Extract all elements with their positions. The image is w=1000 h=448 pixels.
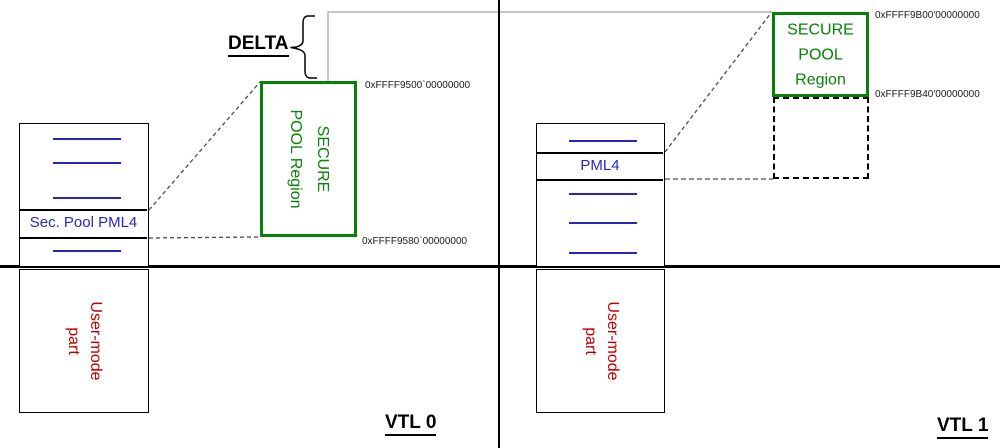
vtl0-cell-separator [20, 237, 147, 239]
vtl0-user-mode-box: User-mode part [19, 269, 149, 413]
vtl0-secure-pool-start-address: 0xFFFF9500`00000000 [365, 80, 470, 91]
vtl0-mapping-line-top [149, 82, 260, 210]
vtl0-secure-pool-pml4-entry: Sec. Pool PML4 [20, 210, 147, 236]
vtl1-pml4-entry: PML4 [537, 153, 663, 179]
vtl1-entry-line [569, 252, 637, 254]
vtl0-mapping-line-bottom [149, 237, 259, 238]
vtl-memory-diagram: DELTA Sec. Pool PML4 User-mode part SECU… [0, 0, 1000, 448]
vtl1-user-mode-label: User-mode part [579, 271, 623, 411]
vtl1-label: VTL 1 [937, 415, 988, 439]
delta-reference-line [328, 12, 772, 81]
vtl1-secure-pool-label: SECURE POOL Region [775, 17, 867, 92]
vtl1-entry-line [569, 222, 637, 224]
vtl0-entry-line [53, 138, 121, 140]
vtl0-pml4-table: Sec. Pool PML4 [19, 123, 149, 267]
vtl1-secure-pool-start-address: 0xFFFF9B00'00000000 [875, 10, 980, 21]
delta-label: DELTA [228, 33, 289, 57]
vtl0-secure-pool-label: SECURE POOL Region [282, 84, 336, 234]
vtl0-secure-pool-region: SECURE POOL Region [260, 81, 357, 237]
vtl0-label: VTL 0 [385, 412, 436, 436]
delta-brace [291, 16, 317, 78]
kernel-user-divider-horizontal [0, 265, 1000, 268]
vtl1-cell-separator [537, 179, 663, 181]
vtl1-user-mode-box: User-mode part [536, 269, 665, 413]
vtl1-secure-pool-region: SECURE POOL Region [772, 12, 869, 97]
vtl0-entry-line [53, 162, 121, 164]
vtl-divider-vertical [498, 0, 500, 448]
vtl1-unmapped-region-box [773, 97, 869, 179]
vtl0-entry-line [53, 250, 121, 252]
vtl1-pml4-table: PML4 [536, 123, 665, 267]
vtl1-mapping-line-top [665, 13, 771, 152]
vtl1-entry-line [569, 140, 637, 142]
vtl0-entry-line [53, 197, 121, 199]
vtl0-user-mode-label: User-mode part [62, 271, 106, 411]
vtl1-secure-pool-end-address: 0xFFFF9B40'00000000 [875, 89, 980, 100]
vtl1-entry-line [569, 193, 637, 195]
vtl0-secure-pool-end-address: 0xFFFF9580`00000000 [362, 236, 467, 247]
